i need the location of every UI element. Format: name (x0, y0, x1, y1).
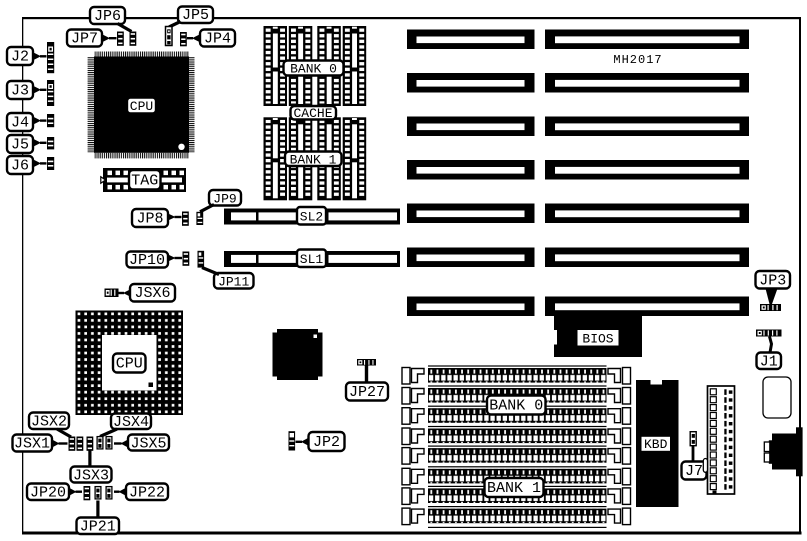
svg-text:JP27: JP27 (349, 384, 385, 401)
svg-text:BANK 1: BANK 1 (290, 153, 337, 168)
svg-text:JP8: JP8 (136, 210, 163, 227)
svg-text:JP11: JP11 (218, 274, 249, 289)
svg-text:KBD: KBD (644, 437, 668, 452)
svg-text:JP2: JP2 (313, 434, 340, 451)
svg-text:SL1: SL1 (300, 252, 324, 267)
svg-text:JSX5: JSX5 (130, 435, 166, 452)
svg-text:JP20: JP20 (30, 485, 66, 502)
svg-text:JP5: JP5 (182, 7, 209, 24)
svg-text:CACHE: CACHE (293, 106, 332, 121)
svg-text:JSX4: JSX4 (113, 414, 149, 431)
svg-text:JP9: JP9 (213, 191, 236, 206)
svg-text:JP6: JP6 (94, 8, 121, 25)
svg-text:BANK 1: BANK 1 (487, 480, 541, 497)
svg-text:J1: J1 (760, 353, 778, 370)
svg-text:CPU: CPU (116, 356, 143, 373)
svg-text:JP21: JP21 (80, 519, 116, 536)
svg-text:CPU: CPU (130, 99, 153, 114)
svg-text:J4: J4 (11, 115, 29, 132)
svg-text:J5: J5 (11, 137, 29, 154)
svg-text:JP4: JP4 (204, 30, 231, 47)
svg-text:BANK 0: BANK 0 (489, 398, 543, 415)
svg-text:J7: J7 (685, 463, 703, 480)
svg-text:BANK 0: BANK 0 (290, 62, 337, 77)
svg-text:JP7: JP7 (71, 30, 98, 47)
svg-text:J6: J6 (11, 158, 29, 175)
svg-text:MH2017: MH2017 (613, 53, 662, 67)
svg-text:TAG: TAG (131, 173, 158, 190)
svg-text:JP22: JP22 (129, 485, 165, 502)
svg-text:JSX2: JSX2 (31, 413, 67, 430)
svg-text:JP3: JP3 (759, 272, 786, 289)
svg-text:SL2: SL2 (300, 209, 323, 224)
svg-text:J2: J2 (11, 49, 29, 66)
svg-text:JP10: JP10 (129, 252, 165, 269)
svg-text:JSX3: JSX3 (73, 467, 109, 484)
svg-text:BIOS: BIOS (582, 332, 613, 347)
svg-text:JSX1: JSX1 (14, 436, 50, 453)
svg-text:JSX6: JSX6 (134, 285, 170, 302)
svg-text:J3: J3 (11, 83, 29, 100)
